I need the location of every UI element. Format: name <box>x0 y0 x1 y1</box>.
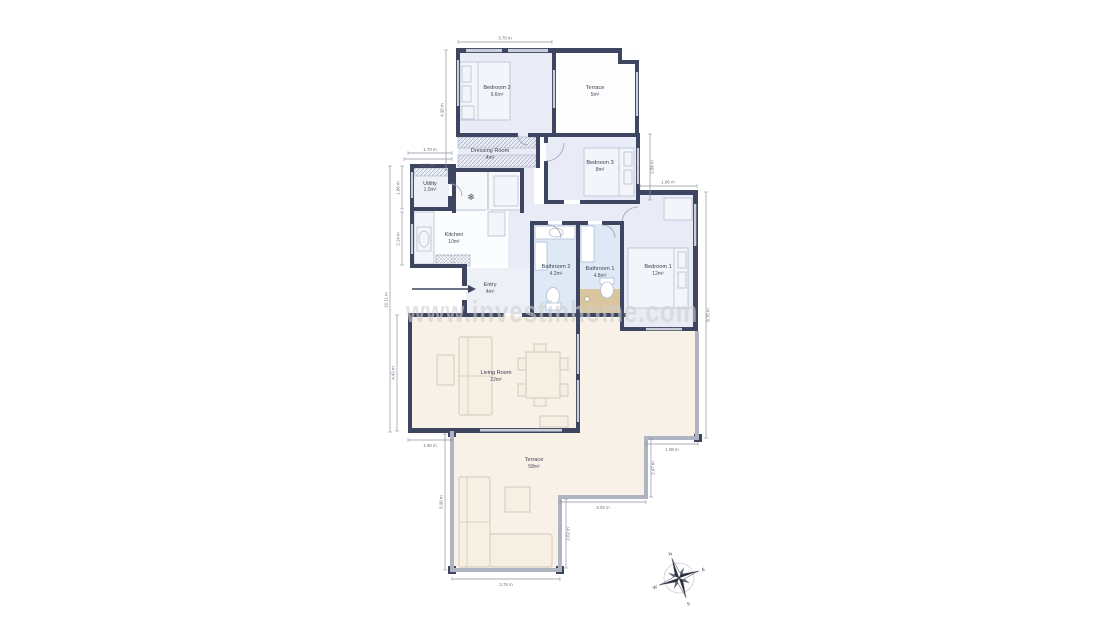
compass-west-label: W <box>652 584 658 590</box>
dimension-label: 10.11 m <box>384 292 389 308</box>
dimension-label: 3.76 m <box>499 582 513 587</box>
snowflake-icon: ❄ <box>467 192 475 202</box>
room-label-terrace-top: Terrace <box>586 85 605 91</box>
room-label-bathroom2: Bathroom 2 <box>542 264 571 270</box>
dimension-label: 1.96 m <box>661 180 675 185</box>
dimension-label: 1.70 m <box>423 147 437 152</box>
room-label-living: Living Room <box>480 370 511 376</box>
room-area-terrace-main: 58m² <box>528 464 540 470</box>
floorplan-canvas: ❄ <box>0 0 1110 626</box>
room-label-entry: Entry <box>483 282 496 288</box>
dimension-label: 3.02 m <box>596 505 610 510</box>
dimension-label: 4.90 m <box>440 103 445 117</box>
dimension-label: 1.90 m <box>423 443 437 448</box>
dimension-label: 1.98 m <box>665 447 679 452</box>
room-area-dressing: 4m² <box>486 155 495 161</box>
room-label-kitchen: Kitchen <box>445 232 464 238</box>
floorplan-svg: ❄ <box>0 0 1110 626</box>
dimension-label: 8.70 m <box>706 308 711 322</box>
room-area-terrace-top: 5m² <box>591 92 600 98</box>
dimension-label: 3.70 m <box>498 36 512 41</box>
room-area-living: 22m² <box>490 377 502 383</box>
dimension-label: 1.21 m <box>421 163 435 168</box>
watermark-text: www.investinhome.com <box>405 294 698 329</box>
bed-bedroom2 <box>460 62 510 120</box>
dimension-label: 5.90 m <box>439 495 444 509</box>
room-area-kitchen: 10m² <box>448 239 460 245</box>
dimension-label: 2.62 m <box>566 527 571 541</box>
dimension-label: 4.43 m <box>391 366 396 380</box>
room-area-bedroom3: 8m² <box>596 167 605 173</box>
room-area-utility: 1.0m² <box>424 187 437 193</box>
dimension-label: 1.88 m <box>396 181 401 195</box>
compass-north-label: N <box>668 551 673 557</box>
room-area-bathroom1: 4.8m² <box>594 273 607 279</box>
room-label-dressing: Dressing Room <box>471 148 510 154</box>
compass-east-label: E <box>701 567 706 573</box>
dimension-label: 2.47 m <box>651 461 656 475</box>
bed-bedroom3 <box>584 148 634 196</box>
compass-rose: N E S W <box>643 542 715 616</box>
room-label-bedroom1: Bedroom 1 <box>644 264 671 270</box>
room-area-bathroom2: 4.2m² <box>550 271 563 277</box>
utility-shelf <box>414 168 447 176</box>
room-label-terrace-main: Terrace <box>525 457 544 463</box>
room-area-bedroom2: 9.6m² <box>491 92 504 98</box>
room-label-bedroom2: Bedroom 2 <box>483 85 510 91</box>
compass-south-label: S <box>686 601 691 607</box>
room-area-bedroom1: 12m² <box>652 271 664 277</box>
room-label-bathroom1: Bathroom 1 <box>586 266 615 272</box>
dimension-label: 2.88 m <box>650 160 655 174</box>
room-label-bedroom3: Bedroom 3 <box>586 160 613 166</box>
dimension-label: 2.14 m <box>396 232 401 246</box>
